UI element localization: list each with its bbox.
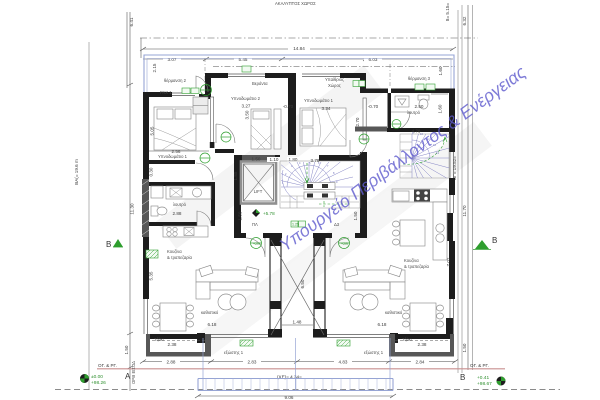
svg-text:ΡΛΧ 1: ΡΛΧ 1 — [160, 90, 172, 95]
svg-text:0.30: 0.30 — [149, 167, 154, 176]
svg-text:Δ3: Δ3 — [334, 222, 340, 227]
svg-text:2.88: 2.88 — [173, 211, 182, 216]
svg-text:1.50: 1.50 — [252, 157, 261, 162]
svg-text:1.50: 1.50 — [353, 211, 358, 220]
svg-text:3.50: 3.50 — [245, 110, 250, 119]
svg-text:ΠΛ: ΠΛ — [252, 222, 258, 227]
svg-text:-0.70: -0.70 — [368, 104, 379, 109]
svg-text:+5.78: +5.78 — [263, 211, 275, 216]
svg-text:2.70: 2.70 — [355, 117, 360, 126]
svg-text:±0.00: ±0.00 — [91, 374, 103, 380]
svg-text:Κουζίνα: Κουζίνα — [167, 249, 182, 254]
svg-text:5.45: 5.45 — [239, 57, 248, 62]
svg-text:Τζάκι: Τζάκι — [402, 337, 412, 342]
svg-text:8= 5.15=: 8= 5.15= — [445, 3, 450, 21]
svg-text:ΑΚΑΛΥΠΤΟΣ ΧΩΡΟΣ: ΑΚΑΛΥΠΤΟΣ ΧΩΡΟΣ — [275, 1, 316, 6]
svg-text:3.27: 3.27 — [242, 104, 251, 109]
svg-text:9.06: 9.06 — [285, 395, 294, 400]
svg-text:6.18: 6.18 — [378, 322, 387, 327]
svg-text:1.60: 1.60 — [438, 104, 443, 113]
svg-text:1.50: 1.50 — [238, 211, 243, 220]
svg-text:Βεράντα: Βεράντα — [252, 81, 268, 86]
svg-text:καθιστικό: καθιστικό — [385, 310, 403, 315]
svg-text:+2Θ: +2Θ — [253, 242, 260, 246]
svg-text:B: B — [106, 240, 111, 249]
svg-text:+98.26: +98.26 — [91, 380, 106, 386]
svg-text:6.50: 6.50 — [300, 279, 305, 288]
svg-text:1.50: 1.50 — [124, 345, 129, 354]
svg-text:-0.70: -0.70 — [283, 104, 294, 109]
svg-text:2.83: 2.83 — [248, 360, 257, 365]
svg-text:Υπνοδωμάτιο 2: Υπνοδωμάτιο 2 — [231, 96, 261, 101]
svg-text:3.78: 3.78 — [311, 158, 320, 163]
svg-text:1.85: 1.85 — [233, 171, 238, 180]
svg-text:6.18: 6.18 — [208, 322, 217, 327]
svg-text:6.41: 6.41 — [129, 17, 134, 26]
svg-text:ΒΓ= 19.52=: ΒΓ= 19.52= — [452, 156, 457, 180]
svg-text:θέρμανση 2: θέρμανση 2 — [164, 78, 187, 83]
svg-text:εξώστης 1: εξώστης 1 — [364, 350, 384, 355]
svg-text:B: B — [492, 236, 497, 245]
svg-text:6.03: 6.03 — [369, 57, 378, 62]
svg-text:ΟΓ. & ΡΓ.: ΟΓ. & ΡΓ. — [470, 363, 489, 368]
svg-text:2.38: 2.38 — [168, 342, 177, 347]
svg-text:εξώστης 1: εξώστης 1 — [224, 350, 244, 355]
svg-text:5.35: 5.35 — [149, 271, 154, 280]
svg-text:4.83: 4.83 — [339, 360, 348, 365]
svg-text:1.48: 1.48 — [293, 320, 302, 325]
svg-text:B: B — [460, 373, 465, 382]
svg-text:+0.41: +0.41 — [477, 375, 489, 381]
svg-text:2.84: 2.84 — [416, 360, 425, 365]
svg-text:7.02: 7.02 — [446, 257, 451, 266]
svg-text:& τραπεζαρία: & τραπεζαρία — [404, 264, 429, 269]
svg-text:11.30: 11.30 — [130, 203, 135, 215]
svg-text:2.38: 2.38 — [418, 342, 427, 347]
svg-text:3.34: 3.34 — [322, 106, 331, 111]
svg-text:καθιστικό: καθιστικό — [201, 310, 219, 315]
svg-text:Υπνοδωμάτιο 1: Υπνοδωμάτιο 1 — [158, 154, 188, 159]
svg-text:1.50: 1.50 — [462, 343, 467, 352]
svg-text:+2Θ: +2Θ — [341, 242, 348, 246]
svg-text:λουτρό: λουτρό — [407, 110, 421, 115]
svg-text:θέρμανση 3: θέρμανση 3 — [408, 76, 431, 81]
svg-text:2.15: 2.15 — [152, 63, 157, 72]
svg-text:LIFT: LIFT — [254, 189, 263, 194]
svg-text:14.84: 14.84 — [293, 46, 305, 51]
svg-text:Υπνοδωμάτιο 1: Υπνοδωμάτιο 1 — [304, 98, 334, 103]
svg-text:2.56: 2.56 — [172, 149, 181, 154]
svg-text:11.70: 11.70 — [462, 205, 467, 217]
svg-text:6.32: 6.32 — [462, 16, 467, 25]
svg-text:ΟΓ. & ΡΓ.: ΟΓ. & ΡΓ. — [98, 363, 117, 368]
svg-text:1.10: 1.10 — [270, 157, 279, 162]
svg-text:3.07: 3.07 — [168, 57, 177, 62]
svg-text:Τζάκι: Τζάκι — [154, 337, 164, 342]
svg-text:& τραπεζαρία: & τραπεζαρία — [167, 255, 192, 260]
svg-text:ΒΑ(= 19.6 m: ΒΑ(= 19.6 m — [74, 159, 79, 185]
svg-text:Χώρος: Χώρος — [328, 83, 341, 88]
svg-text:2.88: 2.88 — [167, 360, 176, 365]
svg-text:5.05: 5.05 — [150, 126, 155, 135]
svg-text:ΟΡΘ ΕΙΣΟΔ: ΟΡΘ ΕΙΣΟΔ — [131, 361, 136, 384]
svg-text:λουτρό: λουτρό — [173, 202, 187, 207]
svg-text:Κουζίνα: Κουζίνα — [404, 258, 419, 263]
svg-text:+98.67: +98.67 — [477, 381, 492, 387]
svg-text:1.60: 1.60 — [438, 66, 443, 75]
svg-text:2.50: 2.50 — [415, 104, 424, 109]
